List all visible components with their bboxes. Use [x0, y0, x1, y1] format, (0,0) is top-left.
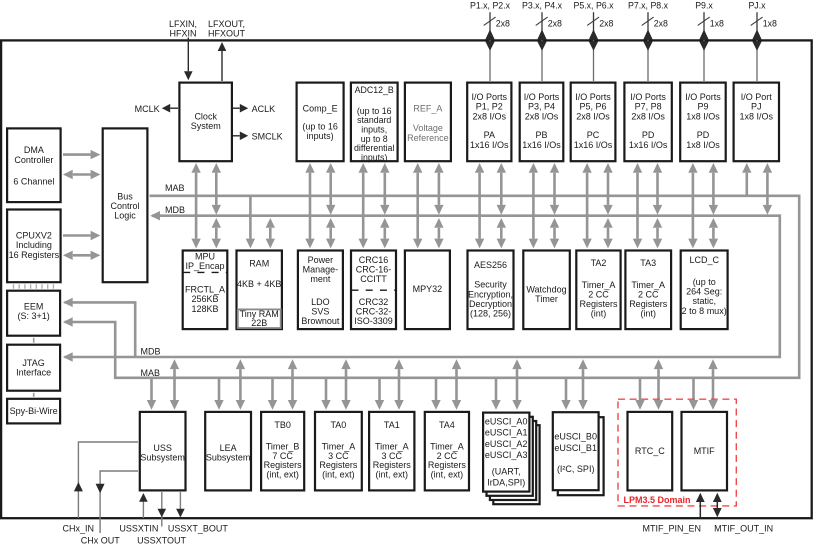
- svg-text:1x8 I/Os: 1x8 I/Os: [686, 111, 720, 121]
- svg-text:MDB: MDB: [141, 347, 161, 357]
- svg-text:2x8: 2x8: [654, 18, 668, 28]
- svg-text:Clock: Clock: [194, 112, 217, 122]
- svg-text:(int): (int): [591, 309, 607, 319]
- svg-text:LFXIN,: LFXIN,: [169, 19, 197, 29]
- svg-text:Watchdog: Watchdog: [526, 285, 566, 295]
- svg-text:1x16 I/Os: 1x16 I/Os: [574, 140, 613, 150]
- svg-text:PB: PB: [535, 130, 547, 140]
- svg-text:Interface: Interface: [16, 368, 51, 378]
- svg-text:(128, 256): (128, 256): [470, 309, 511, 319]
- svg-text:MPU: MPU: [195, 251, 215, 261]
- svg-text:I/O Port: I/O Port: [741, 92, 773, 102]
- svg-text:inputs): inputs): [307, 131, 334, 141]
- svg-text:Decryption: Decryption: [469, 299, 512, 309]
- svg-text:eUSCI_A0: eUSCI_A0: [485, 416, 528, 426]
- svg-text:Subsystem: Subsystem: [140, 453, 185, 463]
- svg-text:2x8 I/Os: 2x8 I/Os: [473, 111, 507, 121]
- svg-text:Security: Security: [474, 280, 507, 290]
- svg-text:2x8 I/Os: 2x8 I/Os: [525, 111, 559, 121]
- svg-text:16 Registers: 16 Registers: [9, 250, 60, 260]
- svg-text:LCD_C: LCD_C: [689, 255, 719, 265]
- svg-text:MPY32: MPY32: [413, 284, 443, 294]
- svg-text:1x16 I/Os: 1x16 I/Os: [629, 140, 668, 150]
- svg-text:Timer_A: Timer_A: [430, 441, 464, 451]
- svg-text:P5, P6: P5, P6: [579, 102, 606, 112]
- svg-text:ISO-3309: ISO-3309: [354, 316, 393, 326]
- svg-text:I/O Ports: I/O Ports: [472, 92, 508, 102]
- svg-text:MTIF_PIN_EN: MTIF_PIN_EN: [643, 523, 702, 533]
- svg-text:2x8: 2x8: [496, 18, 510, 28]
- svg-text:inputs): inputs): [361, 152, 387, 162]
- svg-text:JTAG: JTAG: [22, 358, 44, 368]
- svg-text:CRC32: CRC32: [359, 297, 389, 307]
- svg-text:Reference: Reference: [407, 133, 449, 143]
- svg-text:I/O Ports: I/O Ports: [685, 92, 721, 102]
- svg-text:HFXOUT: HFXOUT: [208, 29, 246, 39]
- svg-text:CHx OUT: CHx OUT: [81, 535, 120, 545]
- svg-text:2 CC: 2 CC: [588, 289, 609, 299]
- svg-text:System: System: [191, 121, 221, 131]
- svg-text:P3.x, P4.x: P3.x, P4.x: [522, 0, 563, 10]
- svg-text:LDO: LDO: [311, 297, 330, 307]
- svg-text:Control: Control: [110, 201, 139, 211]
- svg-text:264 Seg:: 264 Seg:: [686, 287, 722, 297]
- svg-text:MTIF_OUT_IN: MTIF_OUT_IN: [714, 523, 773, 533]
- svg-text:PD: PD: [697, 130, 710, 140]
- svg-text:256KB: 256KB: [191, 294, 218, 304]
- svg-text:eUSCI_A1: eUSCI_A1: [485, 428, 528, 438]
- svg-text:USSXT_BOUT: USSXT_BOUT: [168, 524, 229, 534]
- svg-text:P1, P2: P1, P2: [476, 102, 503, 112]
- svg-text:LEA: LEA: [220, 443, 237, 453]
- svg-text:P7.x, P8.x: P7.x, P8.x: [628, 0, 669, 10]
- svg-text:P5.x, P6.x: P5.x, P6.x: [573, 0, 614, 10]
- svg-text:2x8: 2x8: [599, 18, 613, 28]
- svg-text:(int, ext): (int, ext): [431, 470, 464, 480]
- svg-text:(int): (int): [640, 309, 656, 319]
- svg-text:PD: PD: [642, 130, 655, 140]
- svg-text:EEM: EEM: [24, 301, 44, 311]
- svg-text:ADC12_B: ADC12_B: [355, 85, 394, 95]
- svg-text:IP_Encap: IP_Encap: [185, 261, 224, 271]
- svg-text:2x8 I/Os: 2x8 I/Os: [631, 111, 665, 121]
- svg-text:eUSCI_A2: eUSCI_A2: [485, 439, 528, 449]
- svg-text:MAB: MAB: [141, 368, 161, 378]
- svg-text:I/O Ports: I/O Ports: [524, 92, 560, 102]
- svg-text:Timer_B: Timer_B: [266, 441, 300, 451]
- svg-text:P3, P4: P3, P4: [528, 102, 555, 112]
- svg-text:MCLK: MCLK: [135, 104, 160, 114]
- svg-text:SVS: SVS: [311, 307, 329, 317]
- svg-text:CPUXV2: CPUXV2: [16, 231, 52, 241]
- svg-text:RAM: RAM: [249, 258, 269, 268]
- svg-text:REF_A: REF_A: [413, 103, 442, 113]
- svg-text:(UART,: (UART,: [492, 467, 521, 477]
- svg-text:6 Channel: 6 Channel: [13, 176, 54, 186]
- svg-text:LFXOUT,: LFXOUT,: [208, 19, 245, 29]
- svg-text:2 to 8 mux): 2 to 8 mux): [682, 306, 727, 316]
- svg-text:CRC-16-: CRC-16-: [356, 265, 392, 275]
- svg-text:ment: ment: [310, 274, 331, 284]
- svg-text:ACLK: ACLK: [252, 104, 276, 114]
- svg-text:I/O Ports: I/O Ports: [575, 92, 611, 102]
- svg-text:AES256: AES256: [474, 260, 507, 270]
- svg-text:eUSCI_A3: eUSCI_A3: [485, 450, 528, 460]
- svg-text:Subsystem: Subsystem: [206, 453, 251, 463]
- svg-text:Including: Including: [16, 240, 52, 250]
- svg-text:TB0: TB0: [274, 420, 291, 430]
- svg-text:Brownout: Brownout: [301, 316, 340, 326]
- svg-text:P1.x, P2.x: P1.x, P2.x: [470, 0, 511, 10]
- svg-text:USS: USS: [153, 443, 172, 453]
- svg-text:4KB + 4KB: 4KB + 4KB: [237, 279, 281, 289]
- svg-text:Timer: Timer: [535, 294, 558, 304]
- svg-text:MDB: MDB: [165, 205, 185, 215]
- svg-text:128KB: 128KB: [191, 304, 218, 314]
- svg-text:CCITT: CCITT: [360, 274, 387, 284]
- svg-text:Timer_A: Timer_A: [582, 280, 616, 290]
- svg-text:TA4: TA4: [439, 420, 455, 430]
- svg-text:Timer_A: Timer_A: [631, 280, 665, 290]
- svg-text:USSXTOUT: USSXTOUT: [137, 535, 186, 545]
- svg-text:Voltage: Voltage: [413, 123, 443, 133]
- svg-text:HFXIN: HFXIN: [170, 29, 197, 39]
- svg-text:22B: 22B: [251, 318, 267, 328]
- svg-text:CRC-32-: CRC-32-: [356, 307, 392, 317]
- svg-text:I/O Ports: I/O Ports: [630, 92, 666, 102]
- svg-text:(int, ext): (int, ext): [266, 470, 299, 480]
- svg-text:Encryption,: Encryption,: [468, 289, 513, 299]
- svg-text:TA1: TA1: [384, 420, 400, 430]
- svg-text:Comp_E: Comp_E: [303, 104, 338, 114]
- svg-text:1x16 I/Os: 1x16 I/Os: [522, 140, 561, 150]
- svg-text:MAB: MAB: [165, 183, 185, 193]
- svg-text:TA2: TA2: [591, 258, 607, 268]
- svg-text:eUSCI_B1: eUSCI_B1: [554, 443, 597, 453]
- svg-text:(S: 3+1): (S: 3+1): [17, 311, 49, 321]
- svg-text:Logic: Logic: [114, 211, 136, 221]
- svg-text:Registers: Registers: [629, 299, 668, 309]
- svg-text:Timer_A: Timer_A: [322, 441, 356, 451]
- svg-text:TA3: TA3: [640, 258, 656, 268]
- svg-text:Registers: Registers: [579, 299, 618, 309]
- svg-text:PJ.x: PJ.x: [748, 0, 766, 10]
- svg-text:RTC_C: RTC_C: [635, 446, 665, 456]
- svg-text:Spy-Bi-Wire: Spy-Bi-Wire: [10, 406, 58, 416]
- svg-text:eUSCI_B0: eUSCI_B0: [554, 432, 597, 442]
- svg-text:FRCTL_A: FRCTL_A: [185, 285, 225, 295]
- svg-text:1x16 I/Os: 1x16 I/Os: [470, 140, 509, 150]
- svg-text:CHx_IN: CHx_IN: [63, 524, 95, 534]
- svg-text:(up to 16: (up to 16: [302, 122, 338, 132]
- svg-text:PA: PA: [484, 130, 495, 140]
- svg-text:Controller: Controller: [14, 155, 53, 165]
- svg-text:PC: PC: [587, 130, 600, 140]
- svg-text:1x8: 1x8: [710, 18, 724, 28]
- svg-text:P7, P8: P7, P8: [635, 102, 662, 112]
- svg-text:2 CC: 2 CC: [638, 289, 659, 299]
- svg-text:P9.x: P9.x: [695, 0, 713, 10]
- svg-text:MTIF: MTIF: [694, 446, 715, 456]
- svg-text:1x8 I/Os: 1x8 I/Os: [740, 111, 774, 121]
- svg-text:(up to: (up to: [693, 277, 716, 287]
- svg-text:TA0: TA0: [330, 420, 346, 430]
- svg-text:(int, ext): (int, ext): [376, 470, 409, 480]
- svg-text:DMA: DMA: [24, 145, 44, 155]
- svg-text:2x8: 2x8: [548, 18, 562, 28]
- svg-text:LPM3.5 Domain: LPM3.5 Domain: [624, 495, 691, 505]
- svg-text:(int, ext): (int, ext): [322, 470, 355, 480]
- svg-text:CRC16: CRC16: [359, 255, 389, 265]
- svg-text:Manage-: Manage-: [303, 265, 339, 275]
- svg-text:P9: P9: [697, 102, 708, 112]
- svg-text:1x8 I/Os: 1x8 I/Os: [686, 140, 720, 150]
- svg-text:PJ: PJ: [751, 102, 762, 112]
- svg-text:USSXTIN: USSXTIN: [119, 524, 158, 534]
- svg-text:Power: Power: [308, 255, 334, 265]
- svg-text:Timer_A: Timer_A: [375, 441, 409, 451]
- svg-text:1x8: 1x8: [763, 18, 777, 28]
- svg-text:(I²C, SPI): (I²C, SPI): [557, 464, 595, 474]
- svg-text:2x8 I/Os: 2x8 I/Os: [576, 111, 610, 121]
- svg-text:Bus: Bus: [117, 191, 133, 201]
- svg-text:static,: static,: [692, 296, 716, 306]
- svg-text:IrDA,SPI): IrDA,SPI): [487, 478, 525, 488]
- svg-text:SMCLK: SMCLK: [252, 131, 283, 141]
